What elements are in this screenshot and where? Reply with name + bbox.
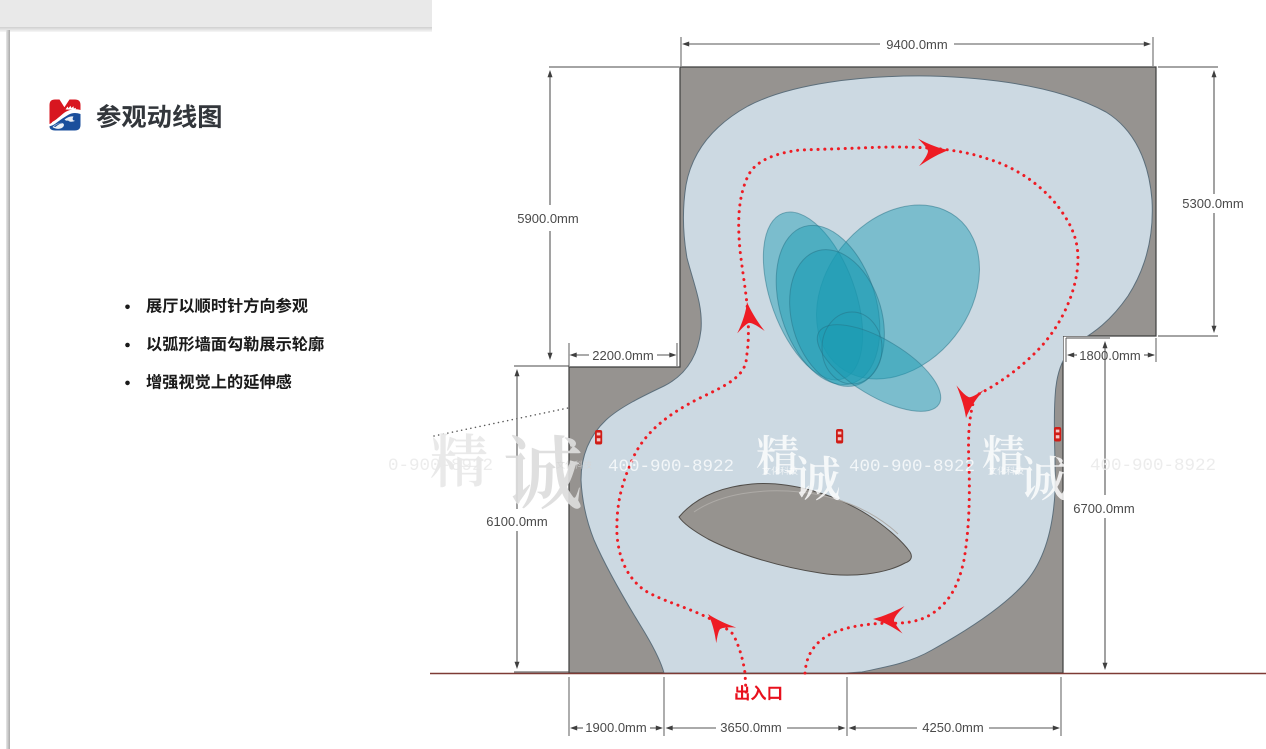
svg-text:5900.0mm: 5900.0mm (517, 211, 578, 226)
svg-text:400-900-8922: 400-900-8922 (1090, 456, 1216, 476)
svg-text:6700.0mm: 6700.0mm (1073, 501, 1134, 516)
svg-text:400-900-8922: 400-900-8922 (849, 457, 975, 477)
svg-text:400-900-8922: 400-900-8922 (608, 457, 734, 477)
svg-text:1800.0mm: 1800.0mm (1079, 348, 1140, 363)
svg-text:6100.0mm: 6100.0mm (486, 514, 547, 529)
svg-text:1900.0mm: 1900.0mm (585, 720, 646, 735)
svg-text:3650.0mm: 3650.0mm (720, 720, 781, 735)
svg-text:4250.0mm: 4250.0mm (922, 720, 983, 735)
svg-text:9400.0mm: 9400.0mm (886, 37, 947, 52)
svg-text:2200.0mm: 2200.0mm (592, 348, 653, 363)
svg-text:5300.0mm: 5300.0mm (1182, 196, 1243, 211)
